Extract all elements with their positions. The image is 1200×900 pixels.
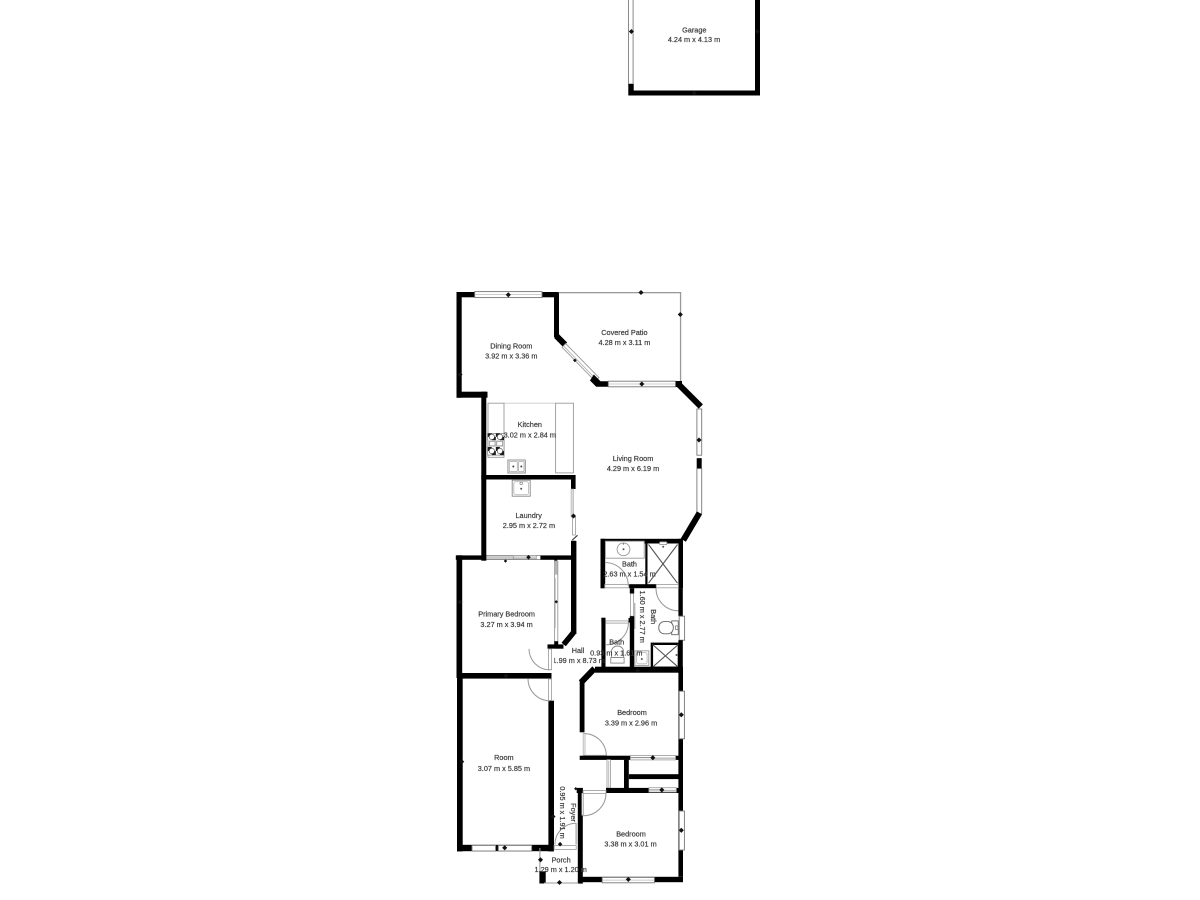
svg-text:Bath: Bath xyxy=(622,560,637,569)
svg-text:Bedroom: Bedroom xyxy=(617,708,647,717)
svg-text:2.63 m x 1.54 m: 2.63 m x 1.54 m xyxy=(603,569,655,578)
svg-text:Porch: Porch xyxy=(552,855,571,864)
svg-text:Kitchen: Kitchen xyxy=(518,420,542,429)
svg-text:2.95 m x 2.72 m: 2.95 m x 2.72 m xyxy=(503,521,555,530)
svg-text:3.92 m x 3.36 m: 3.92 m x 3.36 m xyxy=(485,351,537,360)
svg-text:Covered Patio: Covered Patio xyxy=(601,328,647,337)
svg-text:3.38 m x 3.01 m: 3.38 m x 3.01 m xyxy=(604,840,656,849)
svg-text:4.24 m x 4.13 m: 4.24 m x 4.13 m xyxy=(668,35,720,44)
svg-text:Hall: Hall xyxy=(572,646,585,655)
svg-text:Garage: Garage xyxy=(682,25,706,34)
svg-text:3.27 m x 3.94 m: 3.27 m x 3.94 m xyxy=(480,620,532,629)
svg-text:1.60 m x 2.77 m: 1.60 m x 2.77 m xyxy=(638,591,647,643)
svg-text:3.39 m x 2.96 m: 3.39 m x 2.96 m xyxy=(605,719,657,728)
svg-text:Primary Bedroom: Primary Bedroom xyxy=(478,609,535,618)
svg-text:Room: Room xyxy=(494,753,513,762)
svg-text:Bedroom: Bedroom xyxy=(616,829,646,838)
svg-text:Foyer: Foyer xyxy=(569,803,578,822)
svg-text:3.02 m x 2.84 m: 3.02 m x 2.84 m xyxy=(504,431,556,440)
svg-text:Bath: Bath xyxy=(609,638,624,647)
svg-text:4.29 m x 6.19 m: 4.29 m x 6.19 m xyxy=(607,464,659,473)
svg-text:Dining Room: Dining Room xyxy=(490,342,532,351)
svg-text:1.99 m x 8.73 m: 1.99 m x 8.73 m xyxy=(553,656,605,665)
svg-text:Laundry: Laundry xyxy=(516,511,543,520)
svg-text:Living Room: Living Room xyxy=(613,454,654,463)
svg-text:1.29 m x 1.20 m: 1.29 m x 1.20 m xyxy=(535,865,587,874)
svg-text:3.07 m x 5.85 m: 3.07 m x 5.85 m xyxy=(478,764,530,773)
svg-text:4.28 m x 3.11 m: 4.28 m x 3.11 m xyxy=(599,338,651,347)
svg-text:0.95 m x 1.91 m: 0.95 m x 1.91 m xyxy=(558,786,567,838)
svg-text:Bath: Bath xyxy=(649,609,658,624)
